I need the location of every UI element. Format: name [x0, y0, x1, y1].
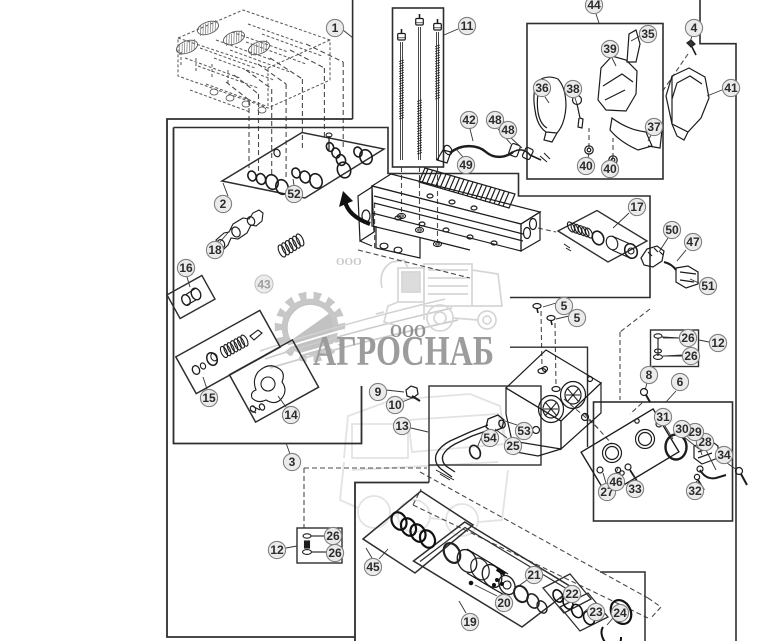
svg-text:38: 38 [566, 82, 580, 96]
svg-text:19: 19 [463, 615, 477, 629]
svg-text:5: 5 [561, 299, 568, 313]
svg-text:8: 8 [646, 368, 653, 382]
svg-text:44: 44 [587, 0, 601, 12]
svg-text:2: 2 [220, 197, 227, 211]
svg-text:32: 32 [688, 484, 702, 498]
svg-text:20: 20 [497, 596, 511, 610]
svg-text:3: 3 [289, 455, 296, 469]
svg-text:16: 16 [179, 261, 193, 275]
svg-text:52: 52 [287, 187, 301, 201]
svg-text:47: 47 [686, 235, 700, 249]
svg-text:48: 48 [488, 113, 502, 127]
svg-text:26: 26 [326, 529, 340, 543]
svg-text:41: 41 [724, 81, 738, 95]
svg-text:46: 46 [609, 475, 623, 489]
svg-text:40: 40 [603, 162, 617, 176]
svg-text:26: 26 [328, 546, 342, 560]
svg-text:33: 33 [628, 482, 642, 496]
svg-text:17: 17 [630, 200, 644, 214]
svg-text:4: 4 [691, 21, 698, 35]
svg-text:15: 15 [202, 391, 216, 405]
svg-text:6: 6 [677, 375, 684, 389]
svg-text:9: 9 [375, 385, 382, 399]
svg-text:18: 18 [208, 243, 222, 257]
svg-text:50: 50 [665, 223, 679, 237]
svg-text:13: 13 [395, 419, 409, 433]
svg-text:12: 12 [270, 543, 284, 557]
svg-text:12: 12 [711, 336, 725, 350]
svg-text:1: 1 [332, 21, 339, 35]
svg-text:OOO: OOO [336, 256, 362, 268]
svg-text:40: 40 [579, 159, 593, 173]
svg-text:43: 43 [257, 278, 271, 292]
svg-text:10: 10 [388, 398, 402, 412]
svg-text:54: 54 [483, 431, 497, 445]
svg-text:24: 24 [613, 606, 627, 620]
svg-text:34: 34 [717, 448, 731, 462]
svg-text:11: 11 [461, 19, 474, 33]
svg-text:36: 36 [535, 81, 549, 95]
svg-text:35: 35 [641, 27, 655, 41]
svg-text:31: 31 [656, 410, 670, 424]
svg-text:21: 21 [527, 568, 541, 582]
svg-text:26: 26 [684, 349, 698, 363]
svg-text:37: 37 [647, 120, 661, 134]
svg-text:53: 53 [517, 424, 531, 438]
svg-text:30: 30 [675, 422, 689, 436]
svg-text:45: 45 [366, 560, 380, 574]
svg-text:51: 51 [701, 279, 715, 293]
svg-text:42: 42 [462, 113, 476, 127]
svg-text:5: 5 [574, 311, 581, 325]
svg-text:39: 39 [603, 42, 617, 56]
svg-text:25: 25 [506, 439, 520, 453]
svg-text:26: 26 [681, 331, 695, 345]
svg-text:14: 14 [284, 408, 298, 422]
svg-text:49: 49 [459, 158, 473, 172]
svg-text:23: 23 [589, 605, 603, 619]
svg-text:АГРОСНАБ: АГРОСНАБ [313, 329, 494, 375]
svg-text:22: 22 [565, 587, 579, 601]
svg-text:48: 48 [501, 123, 515, 137]
